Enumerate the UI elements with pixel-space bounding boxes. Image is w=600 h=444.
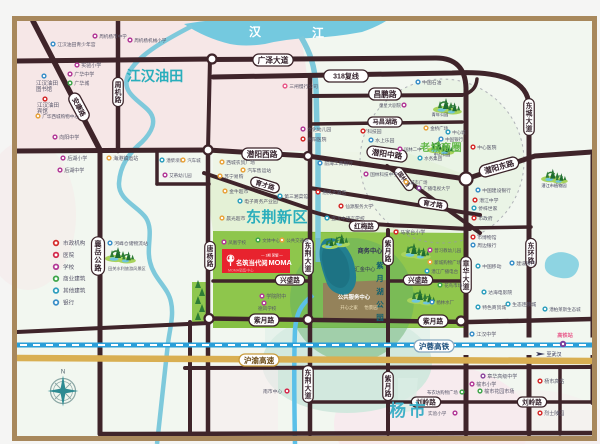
- svg-text:达海电影院: 达海电影院: [488, 289, 512, 296]
- svg-text:医院: 医院: [63, 251, 75, 259]
- svg-text:宜汉中语言学校: 宜汉中语言学校: [331, 215, 365, 222]
- svg-text:名筑当代阅: 名筑当代阅: [236, 258, 268, 267]
- svg-text:田关水利旅游风景区: 田关水利旅游风景区: [108, 265, 146, 272]
- svg-text:园: 园: [376, 313, 384, 322]
- svg-text:MOMA: MOMA: [269, 258, 293, 267]
- svg-text:环: 环: [528, 249, 535, 257]
- svg-text:中心城: 中心城: [452, 129, 466, 136]
- svg-text:仙源服务大学: 仙源服务大学: [345, 203, 373, 210]
- svg-text:中国建设银行: 中国建设银行: [482, 187, 511, 194]
- svg-text:红梅路: 红梅路: [354, 221, 374, 230]
- svg-text:西城农贸广场: 西城农贸广场: [226, 159, 255, 166]
- svg-text:潜柏莱斯生态城: 潜柏莱斯生态城: [549, 306, 581, 313]
- svg-text:高铁站: 高铁站: [557, 331, 573, 339]
- svg-text:建设银行: 建设银行: [516, 260, 535, 267]
- svg-text:杨林水厂: 杨林水厂: [436, 299, 454, 306]
- svg-text:周机杨市中学: 周机杨市中学: [99, 33, 127, 40]
- svg-text:东: 东: [526, 101, 533, 110]
- svg-text:水务集团: 水务集团: [424, 155, 442, 162]
- svg-text:MOMA销售中心: MOMA销售中心: [228, 268, 254, 273]
- svg-text:市政府: 市政府: [478, 215, 493, 222]
- svg-text:东: 东: [305, 368, 312, 377]
- svg-text:开心之家: 开心之家: [340, 304, 358, 311]
- svg-text:杨市高站: 杨市高站: [544, 378, 564, 385]
- svg-text:月: 月: [375, 274, 384, 283]
- svg-text:广华西城购物中心: 广华西城购物中心: [42, 113, 79, 120]
- svg-text:国林二中: 国林二中: [404, 146, 421, 153]
- svg-text:童星大剧院: 童星大剧院: [379, 102, 402, 109]
- svg-text:公共交通站: 公共交通站: [286, 237, 309, 244]
- svg-text:江汉油田: 江汉油田: [37, 101, 59, 109]
- svg-text:水上乐园: 水上乐园: [375, 137, 394, 144]
- svg-text:刘岭路: 刘岭路: [522, 397, 542, 406]
- svg-text:江汉油田: 江汉油田: [127, 68, 184, 85]
- svg-text:马家台小学: 马家台小学: [400, 229, 425, 236]
- svg-text:N: N: [61, 370, 65, 376]
- svg-text:银行: 银行: [63, 299, 75, 307]
- svg-text:路: 路: [94, 264, 102, 273]
- svg-text:后湖小学: 后湖小学: [67, 155, 87, 162]
- svg-text:国林科技中学: 国林科技中学: [370, 171, 398, 178]
- svg-text:苏宁易购: 苏宁易购: [224, 173, 243, 180]
- svg-text:生态连锁城: 生态连锁城: [512, 301, 536, 308]
- svg-text:潜江中学: 潜江中学: [479, 197, 498, 204]
- svg-text:江汉油田: 江汉油田: [36, 79, 58, 87]
- svg-text:花鸟市场: 花鸟市场: [444, 282, 462, 289]
- svg-text:河峰仓储物流站: 河峰仓储物流站: [114, 240, 148, 247]
- svg-text:中国移动: 中国移动: [482, 263, 501, 270]
- svg-text:沪渝高速: 沪渝高速: [244, 355, 275, 365]
- svg-text:紫月路: 紫月路: [423, 316, 444, 325]
- svg-text:杨市: 杨市: [390, 400, 429, 420]
- svg-text:章华高级中学: 章华高级中学: [487, 373, 517, 380]
- svg-text:潜阳西路: 潜阳西路: [247, 149, 278, 159]
- svg-text:德风学校: 德风学校: [258, 305, 277, 312]
- svg-text:汽车城: 汽车城: [187, 157, 201, 164]
- svg-text:紫: 紫: [385, 239, 392, 248]
- svg-text:学院附中: 学院附中: [266, 293, 286, 300]
- svg-text:— 1期 荣耀 —: — 1期 荣耀 —: [261, 253, 283, 258]
- svg-text:至武汉: 至武汉: [546, 351, 561, 358]
- svg-text:路: 路: [207, 259, 214, 268]
- svg-text:紫: 紫: [385, 374, 392, 383]
- svg-text:惠阳医院: 惠阳医院: [307, 136, 326, 143]
- svg-text:路: 路: [385, 254, 392, 263]
- svg-text:电子商务产业园: 电子商务产业园: [244, 198, 278, 205]
- svg-text:汽车售运站: 汽车售运站: [247, 167, 271, 174]
- svg-text:紫: 紫: [376, 260, 384, 270]
- svg-text:第三湘菜馆: 第三湘菜馆: [284, 193, 308, 200]
- svg-text:机: 机: [115, 87, 122, 96]
- svg-text:文化幼儿园: 文化幼儿园: [307, 126, 331, 133]
- svg-text:公共服务中心: 公共服务中心: [338, 293, 371, 301]
- svg-text:道: 道: [526, 124, 533, 133]
- svg-text:唐: 唐: [207, 244, 214, 253]
- svg-text:广华城: 广华城: [74, 80, 89, 87]
- svg-text:兴盛路: 兴盛路: [408, 275, 428, 284]
- svg-text:后湖中学: 后湖中学: [64, 167, 84, 174]
- svg-text:大: 大: [463, 274, 470, 283]
- svg-text:特色商贸城: 特色商贸城: [482, 304, 506, 311]
- svg-text:潜江市植物园: 潜江市植物园: [541, 182, 566, 189]
- svg-text:兴盛路: 兴盛路: [280, 275, 300, 284]
- svg-text:市政机构: 市政机构: [63, 239, 86, 247]
- svg-text:金牛超市: 金牛超市: [229, 188, 248, 195]
- svg-text:烈士陵园: 烈士陵园: [544, 410, 564, 417]
- svg-text:江汉油田青少年宫: 江汉油田青少年宫: [57, 41, 96, 48]
- svg-text:荆: 荆: [305, 376, 312, 385]
- svg-text:实验小学: 实验小学: [81, 62, 101, 69]
- svg-text:章: 章: [463, 259, 470, 268]
- svg-text:曾习教幼儿园: 曾习教幼儿园: [434, 247, 461, 254]
- svg-text:新城购物广场: 新城购物广场: [434, 259, 461, 266]
- svg-text:榆市花园市场: 榆市花园市场: [484, 388, 514, 395]
- svg-text:广泽大道: 广泽大道: [258, 55, 289, 65]
- svg-text:大: 大: [305, 383, 312, 392]
- svg-text:杨: 杨: [207, 251, 214, 260]
- svg-text:道: 道: [305, 264, 312, 273]
- svg-text:昌鹏路: 昌鹏路: [373, 89, 396, 99]
- svg-text:318复线: 318复线: [333, 72, 359, 81]
- svg-text:凤凰学校: 凤凰学校: [228, 239, 246, 246]
- svg-text:图书馆: 图书馆: [36, 85, 53, 93]
- svg-text:汇金中心: 汇金中心: [355, 265, 376, 273]
- svg-text:商业建筑: 商业建筑: [63, 275, 86, 283]
- svg-text:路: 路: [115, 95, 122, 104]
- svg-text:广华中学: 广华中学: [74, 71, 94, 78]
- svg-text:荆: 荆: [305, 249, 312, 258]
- svg-text:华: 华: [463, 267, 470, 276]
- svg-text:榆市小学: 榆市小学: [476, 381, 496, 388]
- svg-text:汉: 汉: [249, 24, 262, 39]
- svg-text:城市广场: 城市广场: [410, 179, 428, 186]
- svg-text:布衣坊购物广场: 布衣坊购物广场: [427, 389, 458, 396]
- svg-text:市博物馆: 市博物馆: [477, 234, 496, 241]
- svg-text:大: 大: [305, 256, 312, 265]
- svg-text:文体中心: 文体中心: [262, 237, 280, 244]
- svg-text:学校: 学校: [63, 263, 75, 271]
- svg-text:城: 城: [526, 109, 533, 118]
- svg-text:商务中心: 商务中心: [358, 247, 384, 255]
- svg-text:路: 路: [385, 389, 392, 398]
- svg-text:潜江广播电台: 潜江广播电台: [431, 268, 458, 275]
- svg-text:三闸慢行公司: 三闸慢行公司: [289, 83, 318, 90]
- svg-text:怡景园: 怡景园: [364, 304, 378, 311]
- svg-text:东: 东: [528, 241, 535, 250]
- svg-text:前海工商银行: 前海工商银行: [324, 160, 353, 167]
- svg-text:江汉中学: 江汉中学: [476, 331, 496, 338]
- svg-text:江: 江: [312, 25, 324, 40]
- svg-text:沪蓉高铁: 沪蓉高铁: [419, 341, 450, 351]
- svg-text:中国银行: 中国银行: [445, 136, 463, 143]
- svg-text:中心医院: 中心医院: [477, 144, 496, 151]
- svg-text:中国石油: 中国石油: [422, 79, 441, 86]
- svg-text:惠民大酒店: 惠民大酒店: [322, 189, 346, 196]
- svg-text:实验小学: 实验小学: [428, 410, 447, 417]
- svg-text:月: 月: [384, 382, 392, 390]
- svg-text:周机杨机械小学: 周机杨机械小学: [134, 37, 167, 44]
- svg-text:紫月路: 紫月路: [254, 315, 275, 324]
- svg-text:马昌湖路: 马昌湖路: [373, 118, 399, 126]
- svg-text:湖: 湖: [376, 286, 384, 296]
- svg-text:道: 道: [305, 391, 312, 400]
- svg-text:海港镇运站: 海港镇运站: [113, 155, 138, 162]
- svg-text:向阳中学: 向阳中学: [59, 134, 79, 141]
- svg-text:大: 大: [526, 116, 533, 125]
- svg-text:青年公园: 青年公园: [432, 111, 449, 118]
- svg-text:晨光超市: 晨光超市: [226, 215, 245, 222]
- svg-text:科技园: 科技园: [367, 128, 382, 135]
- svg-text:艾蒂幼儿园: 艾蒂幼儿园: [169, 172, 192, 179]
- svg-text:广播电视大学: 广播电视大学: [423, 185, 450, 192]
- svg-text:月: 月: [384, 247, 392, 255]
- svg-text:周: 周: [115, 80, 122, 89]
- svg-text:其他建筑: 其他建筑: [63, 287, 86, 295]
- svg-text:东荆新区: 东荆新区: [246, 208, 308, 226]
- svg-text:周边银行: 周边银行: [477, 242, 496, 249]
- svg-text:南市中心: 南市中心: [263, 388, 282, 395]
- svg-text:道: 道: [463, 282, 470, 291]
- svg-text:侨梓世家: 侨梓世家: [478, 205, 497, 212]
